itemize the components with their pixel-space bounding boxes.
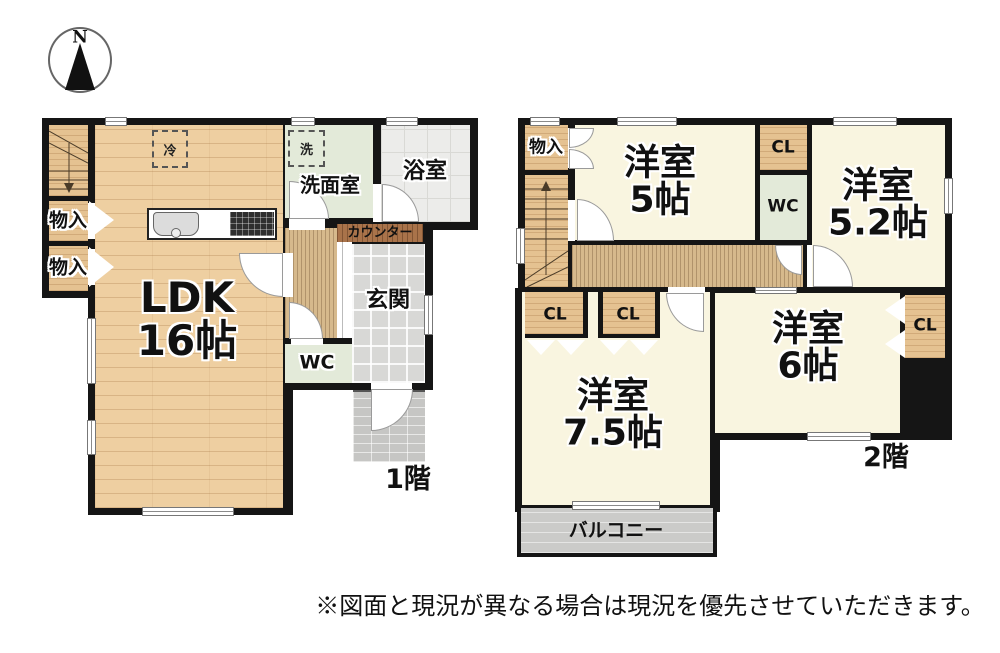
label-floor1: 1階 (385, 466, 431, 494)
refrigerator-label: 冷 (163, 140, 176, 159)
kitchen-faucet (171, 228, 181, 238)
label-senmenshitsu: 洗面室 (300, 175, 360, 195)
label-monoire2-1f: 物入 (49, 258, 87, 277)
window-balcony (572, 501, 660, 510)
label-genkan: 玄関 (366, 290, 410, 312)
opening-senmen (289, 218, 325, 230)
room-stairs-1f (49, 125, 88, 196)
washer-label: 洗 (300, 139, 313, 158)
window (516, 228, 525, 264)
window (291, 117, 315, 126)
window (530, 117, 560, 126)
opening-wc-1f (291, 338, 323, 345)
window (142, 507, 234, 516)
label-monoire1-1f: 物入 (49, 211, 87, 230)
opening-yoshitsu6-sliding (755, 287, 797, 294)
label-yoshitsu75: 洋室 7.5帖 (563, 378, 663, 451)
kitchen-stove (230, 212, 274, 236)
window (386, 117, 418, 126)
refrigerator-box: 冷 (152, 130, 188, 168)
window (105, 117, 127, 126)
genkan-step-strip (337, 242, 352, 338)
compass-north-label: N (72, 29, 88, 46)
label-cl-right-2f: CL (913, 317, 936, 334)
label-ldk: LDK 16帖 (137, 277, 237, 363)
room-genkan (352, 244, 425, 383)
floorplan-canvas: N 冷 洗 (0, 0, 1000, 653)
hallway-2f (572, 245, 803, 287)
disclaimer-text: ※図面と現況が異なる場合は現況を優先させていただきます。 (315, 594, 985, 618)
window (424, 295, 433, 335)
opening-yoshitsu52 (807, 245, 812, 287)
window (807, 432, 871, 441)
label-yoshitsu52: 洋室 5.2帖 (828, 168, 928, 241)
label-cl2-2f: CL (616, 306, 639, 323)
opening-yoshitsu5 (568, 200, 575, 241)
label-yokushitsu: 浴室 (403, 161, 447, 183)
label-yoshitsu6: 洋室 6帖 (772, 311, 844, 384)
label-monoire-2f: 物入 (529, 139, 563, 156)
window (87, 318, 96, 384)
label-counter: カウンター (347, 226, 412, 239)
room-stairs-2f (525, 175, 568, 287)
label-cl-top-2f: CL (771, 139, 794, 156)
label-balcony: バルコニー (569, 521, 664, 540)
label-cl1-2f: CL (543, 306, 566, 323)
washer-box: 洗 (288, 130, 325, 167)
window (617, 117, 677, 126)
opening-bath (373, 184, 381, 222)
label-yoshitsu5: 洋室 5帖 (624, 145, 696, 218)
window (944, 178, 953, 214)
window (833, 117, 897, 126)
label-wc-2f: WC (767, 198, 798, 215)
label-wc-1f: WC (300, 353, 335, 372)
opening-ldk-hall (283, 253, 293, 297)
label-floor2: 2階 (863, 444, 909, 472)
window (87, 420, 96, 455)
